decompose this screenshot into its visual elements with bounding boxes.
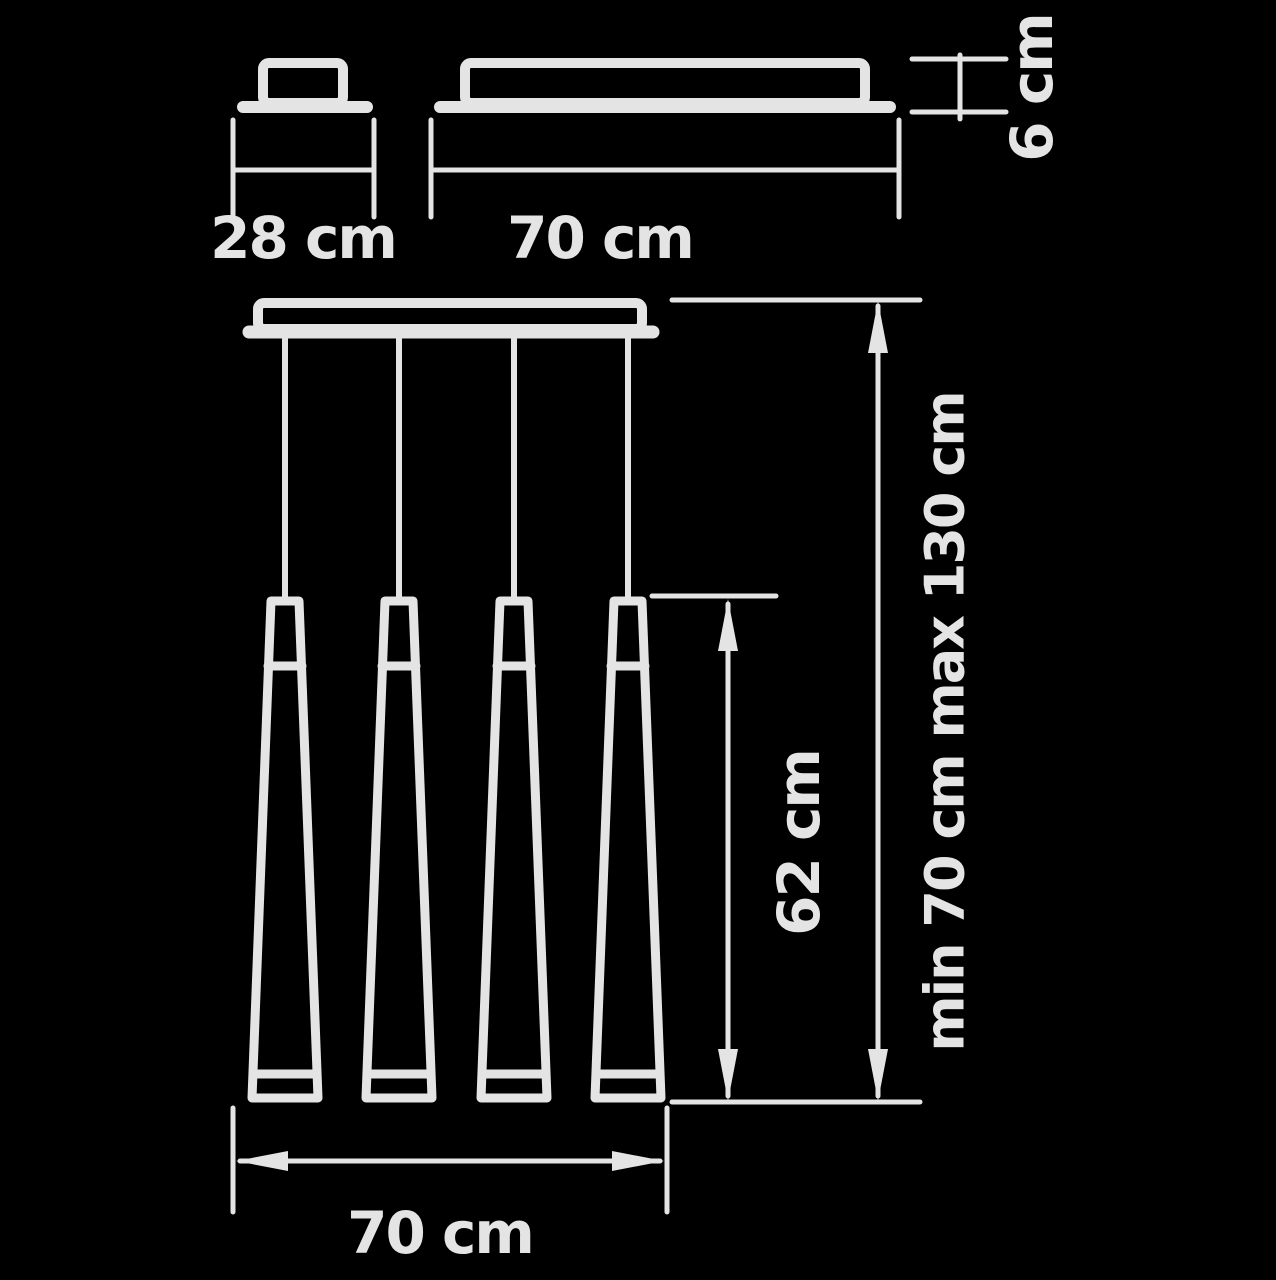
end-view <box>233 63 374 217</box>
arrow-up-icon <box>868 301 888 353</box>
side-view <box>431 55 1006 217</box>
side-view-canopy-box <box>465 63 865 103</box>
labels: 28 cm 70 cm 6 cm 62 cm min 70 cm max 130… <box>210 14 1066 1267</box>
front-view-canopy-box <box>258 303 642 329</box>
cone-outline <box>252 601 318 1098</box>
suspension-range-label: min 70 cm max 130 cm <box>914 392 977 1051</box>
cone-shade <box>366 601 432 1098</box>
canopy-height-label: 6 cm <box>998 14 1066 161</box>
arrowheads <box>236 301 888 1171</box>
arrow-right-icon <box>612 1151 664 1171</box>
overall-width-label: 70 cm <box>347 1199 533 1267</box>
cone-outline <box>481 601 547 1098</box>
cone-shade <box>252 601 318 1098</box>
shade-length-label: 62 cm <box>765 750 833 936</box>
side-view-width-label: 70 cm <box>507 204 693 272</box>
arrow-left-icon <box>236 1151 288 1171</box>
cone-shade <box>595 601 661 1098</box>
dimension-diagram: 28 cm 70 cm 6 cm 62 cm min 70 cm max 130… <box>0 0 1276 1280</box>
cone-outline <box>366 601 432 1098</box>
arrow-up-icon <box>718 599 738 651</box>
end-view-canopy-box <box>263 63 343 103</box>
cone-outline <box>595 601 661 1098</box>
cone-shade <box>481 601 547 1098</box>
arrow-down-icon <box>868 1049 888 1101</box>
diagram-canvas: 28 cm 70 cm 6 cm 62 cm min 70 cm max 130… <box>0 0 1276 1280</box>
arrow-down-icon <box>718 1049 738 1101</box>
end-view-width-label: 28 cm <box>210 204 396 272</box>
